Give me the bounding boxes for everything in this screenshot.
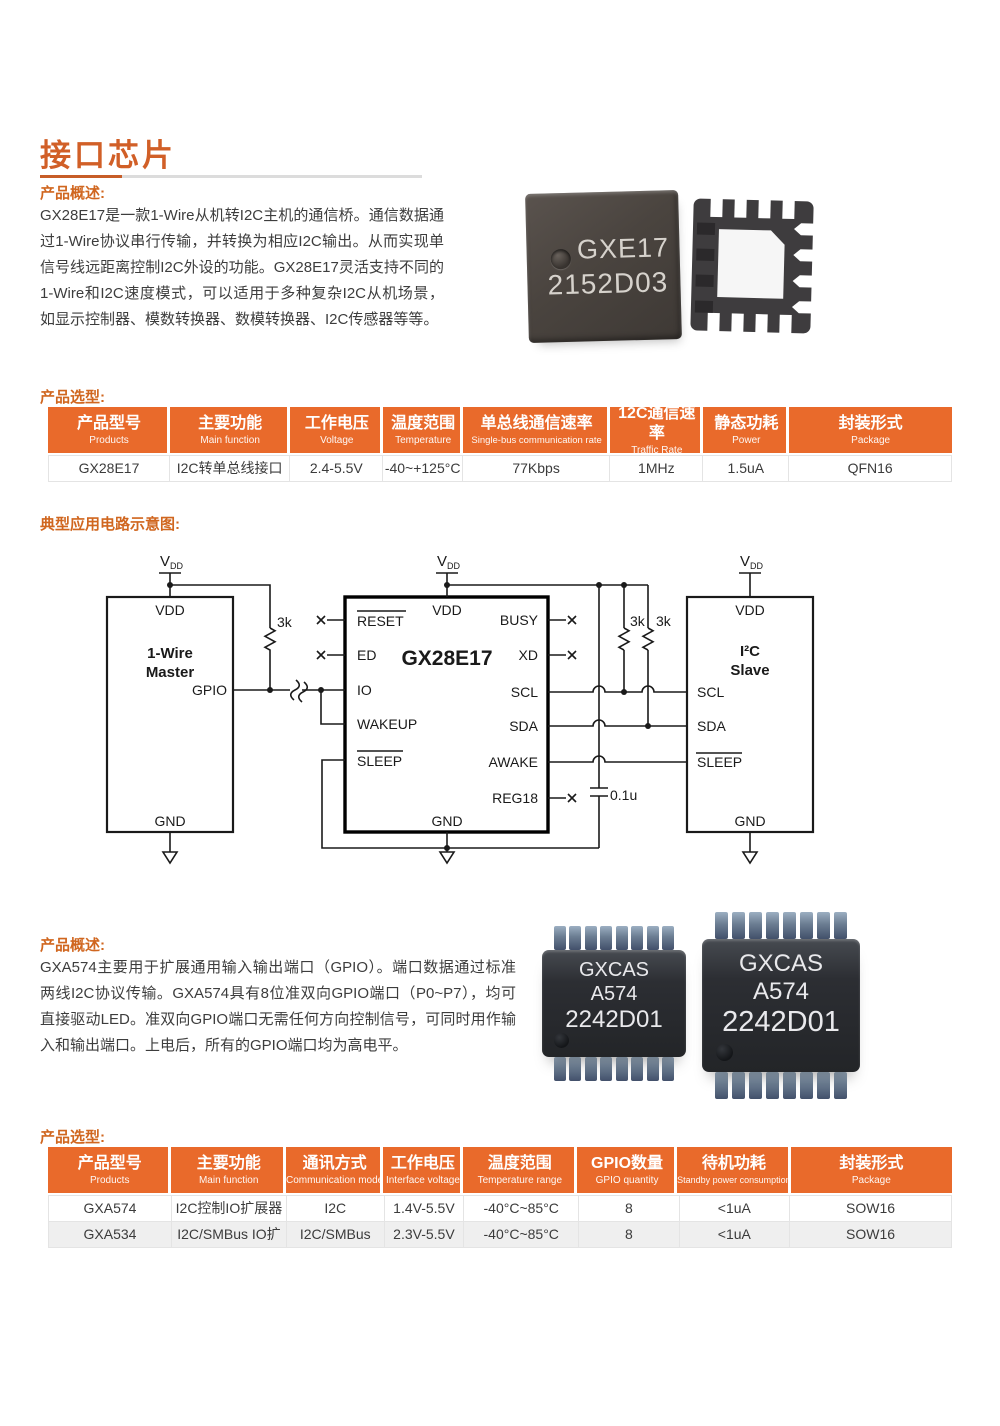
header-package: 封装形式Package xyxy=(789,407,952,453)
header-interface-voltage: 工作电压Interface voltage xyxy=(383,1147,462,1193)
chip-marking-line3: 2242D01 xyxy=(542,1006,686,1033)
header-temperature: 温度范围Temperature xyxy=(383,407,463,453)
header-power: 静态功耗Power xyxy=(703,407,789,453)
chip-marking-line2: A574 xyxy=(542,982,686,1006)
title-underline xyxy=(40,175,422,178)
svg-text:VDD: VDD xyxy=(740,553,764,571)
header-main-function: 主要功能Main function xyxy=(171,1147,285,1193)
chip-photo-sow16-small: GXCAS A574 2242D01 xyxy=(542,926,686,1081)
cell-function: I2C控制IO扩展器 xyxy=(172,1195,287,1222)
header-i2c-rate: 12C通信速率Traffic Rate xyxy=(610,407,703,453)
chip-marking-line2: 2152D03 xyxy=(539,266,677,302)
chip-pin-busy: BUSY xyxy=(500,612,539,628)
chip-pin-sda: SDA xyxy=(509,718,538,734)
ground-symbol xyxy=(163,852,177,863)
title-underline-accent xyxy=(40,175,122,178)
circuit-label: 典型应用电路示意图: xyxy=(40,513,180,534)
chip-pin xyxy=(817,1072,830,1099)
cell-standby-power: <1uA xyxy=(680,1222,790,1248)
slave-pin-sleep: SLEEP xyxy=(697,754,742,770)
chip-pin xyxy=(585,926,597,950)
chip-pin-gnd: GND xyxy=(431,813,462,829)
chip-pin xyxy=(800,1072,813,1099)
chip-marking-line3: 2242D01 xyxy=(702,1006,860,1038)
chip-pin xyxy=(662,1057,674,1081)
chip-pin xyxy=(631,926,643,950)
chip-pin-wakeup: WAKEUP xyxy=(357,716,417,732)
table-row: GXA574 I2C控制IO扩展器 I2C 1.4V-5.5V -40°C~85… xyxy=(48,1195,952,1222)
chip-pin xyxy=(554,1057,566,1081)
master-pin-vdd: VDD xyxy=(155,602,185,618)
cell-voltage: 1.4V-5.5V xyxy=(385,1195,465,1222)
chip-pin-scl: SCL xyxy=(511,684,538,700)
cell-communication: I2C xyxy=(287,1195,385,1222)
cell-standby-power: <1uA xyxy=(680,1195,790,1222)
chip-pin xyxy=(554,926,566,950)
slave-pin-sda: SDA xyxy=(697,718,726,734)
slave-title-1: I²C xyxy=(740,643,760,660)
slave-pin-scl: SCL xyxy=(697,684,724,700)
chip-pin xyxy=(662,926,674,950)
svg-text:VDD: VDD xyxy=(437,553,461,571)
table2-header: 产品型号Products 主要功能Main function 通讯方式Commu… xyxy=(48,1147,952,1193)
chip-pin xyxy=(766,1072,779,1099)
cell-package: QFN16 xyxy=(789,455,952,482)
vdd-symbol-chip: VDD xyxy=(436,553,461,597)
cell-gpio-quantity: 8 xyxy=(579,1195,679,1222)
chip-marking-line2: A574 xyxy=(702,978,860,1006)
selection2-label: 产品选型: xyxy=(40,1126,105,1147)
page-title: 接口芯片 xyxy=(40,130,176,175)
chip-pin xyxy=(732,1072,745,1099)
chip-pin xyxy=(783,1072,796,1099)
signal-lines xyxy=(548,686,687,762)
i2c-slave-box xyxy=(687,597,813,832)
chip-pin xyxy=(647,1057,659,1081)
cell-product: GX28E17 xyxy=(48,455,170,482)
resistor-label: 3k xyxy=(277,614,293,630)
chip-pins-top xyxy=(702,912,860,939)
chip-pin xyxy=(631,1057,643,1081)
nc-stubs xyxy=(317,616,576,802)
chip-pin xyxy=(715,1072,728,1099)
chip-pin xyxy=(585,1057,597,1081)
chip-photo-qfn-bottom xyxy=(688,194,820,340)
header-products: 产品型号Products xyxy=(48,1147,171,1193)
chip-pin xyxy=(569,926,581,950)
chip-pins-bottom xyxy=(702,1072,860,1099)
master-title-2: Master xyxy=(146,664,195,681)
svg-text:VDD: VDD xyxy=(160,553,184,571)
chip-pin-vdd: VDD xyxy=(432,602,462,618)
capacitor-label: 0.1u xyxy=(610,787,637,803)
chip-pin xyxy=(569,1057,581,1081)
chip-pin xyxy=(766,912,779,939)
overview1-label: 产品概述: xyxy=(40,182,105,203)
overview2-text: GXA574主要用于扩展通用输入输出端口（GPIO）。端口数据通过标准两线I2C… xyxy=(40,955,516,1059)
header-products: 产品型号Products xyxy=(48,407,170,453)
cell-i2c-rate: 1MHz xyxy=(610,455,703,482)
chip-pin xyxy=(647,926,659,950)
selection1-label: 产品选型: xyxy=(40,386,105,407)
chip-pin xyxy=(749,1072,762,1099)
cell-function: I2C转单总线接口 xyxy=(170,455,290,482)
chip-pin xyxy=(834,912,847,939)
header-package: 封装形式Package xyxy=(791,1147,952,1193)
header-single-bus-rate: 单总线通信速率Single-bus communication rate xyxy=(463,407,610,453)
cell-voltage: 2.3V-5.5V xyxy=(385,1222,465,1248)
ground-symbol xyxy=(440,852,454,863)
table-row: GX28E17 I2C转单总线接口 2.4-5.5V -40~+125°C 77… xyxy=(48,455,952,482)
master-pin-gpio: GPIO xyxy=(192,682,227,698)
chip-pin xyxy=(817,912,830,939)
cell-temperature: -40~+125°C xyxy=(383,455,463,482)
chip-pin xyxy=(600,926,612,950)
slave-title-2: Slave xyxy=(730,662,769,679)
slave-pin-gnd: GND xyxy=(734,813,765,829)
ground-rail xyxy=(163,760,757,863)
chip-name: GX28E17 xyxy=(401,647,492,670)
chip-body: GXCAS A574 2242D01 xyxy=(542,950,686,1057)
pin1-dot xyxy=(716,1044,733,1061)
cell-product: GXA534 xyxy=(48,1222,172,1248)
chip-pin xyxy=(834,1072,847,1099)
chip-pin-awake: AWAKE xyxy=(488,754,538,770)
header-standby-power: 待机功耗Standby power consumption xyxy=(677,1147,791,1193)
chip-pin-ed: ED xyxy=(357,647,376,663)
header-gpio-quantity: GPIO数量GPIO quantity xyxy=(577,1147,677,1193)
vdd-symbol-master: VDD xyxy=(159,553,184,597)
master-pin-gnd: GND xyxy=(154,813,185,829)
header-temperature-range: 温度范围Temperature range xyxy=(463,1147,577,1193)
cell-power: 1.5uA xyxy=(703,455,789,482)
chip-marking-line1: GXCAS xyxy=(702,950,860,978)
product-table-1: 产品型号Products 主要功能Main function 工作电压Volta… xyxy=(48,407,952,482)
chip-pin xyxy=(600,1057,612,1081)
chip-body: GXCAS A574 2242D01 xyxy=(702,939,860,1072)
product-table-2: 产品型号Products 主要功能Main function 通讯方式Commu… xyxy=(48,1147,952,1248)
chip-pin xyxy=(616,926,628,950)
cell-temperature: -40°C~85°C xyxy=(464,1222,579,1248)
cell-temperature: -40°C~85°C xyxy=(464,1195,579,1222)
ground-symbol xyxy=(743,852,757,863)
resistor-label: 3k xyxy=(630,613,646,629)
i2c-pullup-network: 3k 3k 0.1u xyxy=(444,582,672,848)
resistor-3k-1wire xyxy=(265,628,275,690)
header-communication-mode: 通讯方式Communication mode xyxy=(286,1147,383,1193)
datasheet-page: 接口芯片 产品概述: GX28E17是一款1-Wire从机转I2C主机的通信桥。… xyxy=(0,0,1000,1426)
chip-pin xyxy=(783,912,796,939)
pin1-dot xyxy=(554,1033,569,1048)
cell-communication: I2C/SMBus xyxy=(287,1222,385,1248)
cell-single-bus-rate: 77Kbps xyxy=(463,455,610,482)
header-voltage: 工作电压Voltage xyxy=(290,407,383,453)
cell-function: I2C/SMBus IO扩展器 xyxy=(172,1222,287,1248)
chip-pin-reset: RESET xyxy=(357,613,404,629)
pin1-dot xyxy=(551,249,572,270)
cell-package: SOW16 xyxy=(790,1222,952,1248)
chip-pin-reg18: REG18 xyxy=(492,790,538,806)
cell-product: GXA574 xyxy=(48,1195,172,1222)
chip-marking-line1: GXCAS xyxy=(542,958,686,982)
application-circuit-diagram: VDD VDD VDD 3k xyxy=(0,535,1000,895)
cell-voltage: 2.4-5.5V xyxy=(290,455,383,482)
chip-pin xyxy=(749,912,762,939)
chip-pin-sleep: SLEEP xyxy=(357,753,402,769)
table-row: GXA534 I2C/SMBus IO扩展器 I2C/SMBus 2.3V-5.… xyxy=(48,1222,952,1248)
resistor-3k-sda xyxy=(643,628,653,650)
chip-pins-bottom xyxy=(542,1057,686,1081)
chip-pin-xd: XD xyxy=(519,647,538,663)
cell-gpio-quantity: 8 xyxy=(579,1222,679,1248)
chip-marking-line1: GXE17 xyxy=(570,232,676,266)
chip-pin xyxy=(715,912,728,939)
one-wire-master-box xyxy=(107,597,233,832)
table1-header: 产品型号Products 主要功能Main function 工作电压Volta… xyxy=(48,407,952,453)
header-main-function: 主要功能Main function xyxy=(170,407,290,453)
master-title-1: 1-Wire xyxy=(147,645,193,662)
chip-pin-io: IO xyxy=(357,682,372,698)
vdd-symbol-slave: VDD xyxy=(739,553,764,597)
qfn-center-pad xyxy=(717,229,785,299)
chip-photo-qfn-top: GXE17 2152D03 xyxy=(525,190,682,343)
overview2-label: 产品概述: xyxy=(40,934,105,955)
slave-pin-vdd: VDD xyxy=(735,602,765,618)
chip-pin xyxy=(616,1057,628,1081)
chip-pin xyxy=(800,912,813,939)
chip-pin xyxy=(732,912,745,939)
overview1-text: GX28E17是一款1-Wire从机转I2C主机的通信桥。通信数据通过1-Wir… xyxy=(40,203,444,333)
chip-pins-top xyxy=(542,926,686,950)
resistor-label: 3k xyxy=(656,613,672,629)
resistor-3k-scl xyxy=(619,628,629,650)
chip-photo-sow16-large: GXCAS A574 2242D01 xyxy=(702,912,860,1099)
cell-package: SOW16 xyxy=(790,1195,952,1222)
